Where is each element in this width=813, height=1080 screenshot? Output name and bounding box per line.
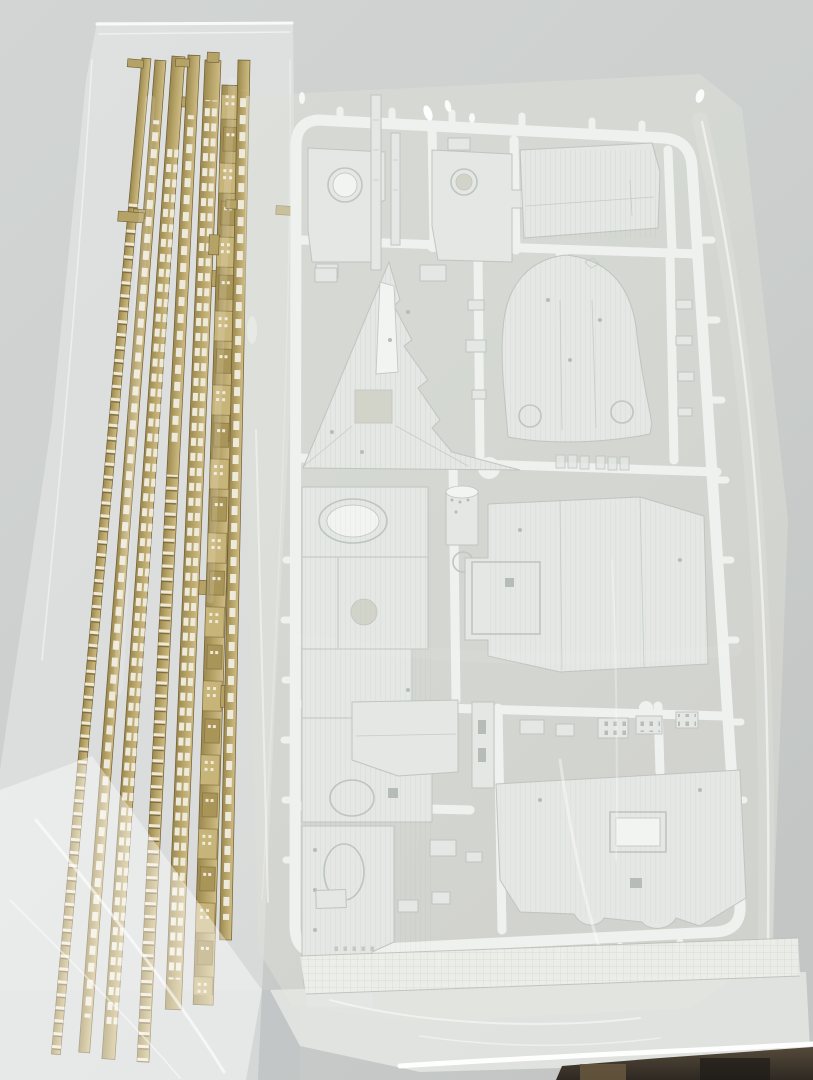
model-kit-sprues-photo: ; (0, 0, 813, 1080)
photo-canvas: ; (0, 0, 813, 1080)
white-bag-overlay (244, 74, 813, 1072)
